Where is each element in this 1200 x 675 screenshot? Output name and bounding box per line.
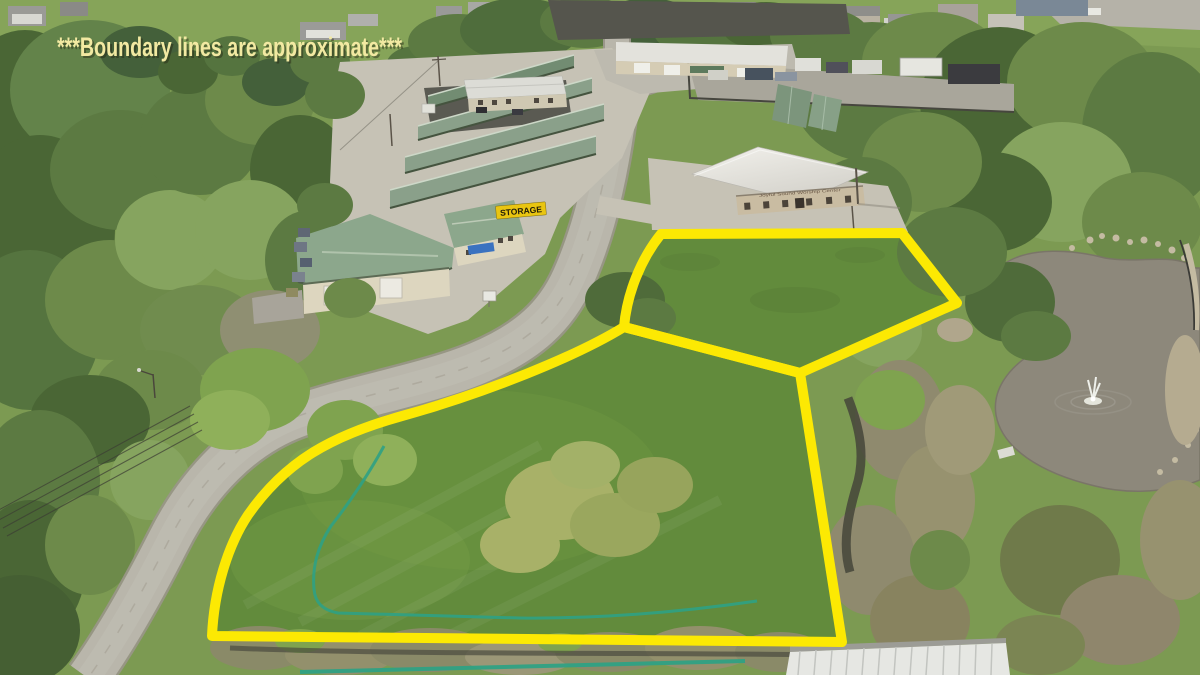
parked-car bbox=[476, 107, 487, 113]
white-shed bbox=[422, 104, 435, 113]
box-truck bbox=[795, 58, 821, 71]
annotation: ***Boundary lines are approximate*** ***… bbox=[57, 32, 404, 64]
annotation-text: ***Boundary lines are approximate*** bbox=[57, 32, 402, 62]
aerial-photo: STORAGE bbox=[0, 0, 1200, 675]
aerial-photo-canvas: STORAGE bbox=[0, 0, 1200, 675]
entry-door bbox=[795, 198, 805, 209]
boat bbox=[775, 72, 797, 81]
large-blue-building bbox=[1016, 0, 1088, 16]
parked-car bbox=[512, 109, 523, 115]
garage-door bbox=[380, 278, 402, 298]
box-truck bbox=[826, 62, 848, 73]
